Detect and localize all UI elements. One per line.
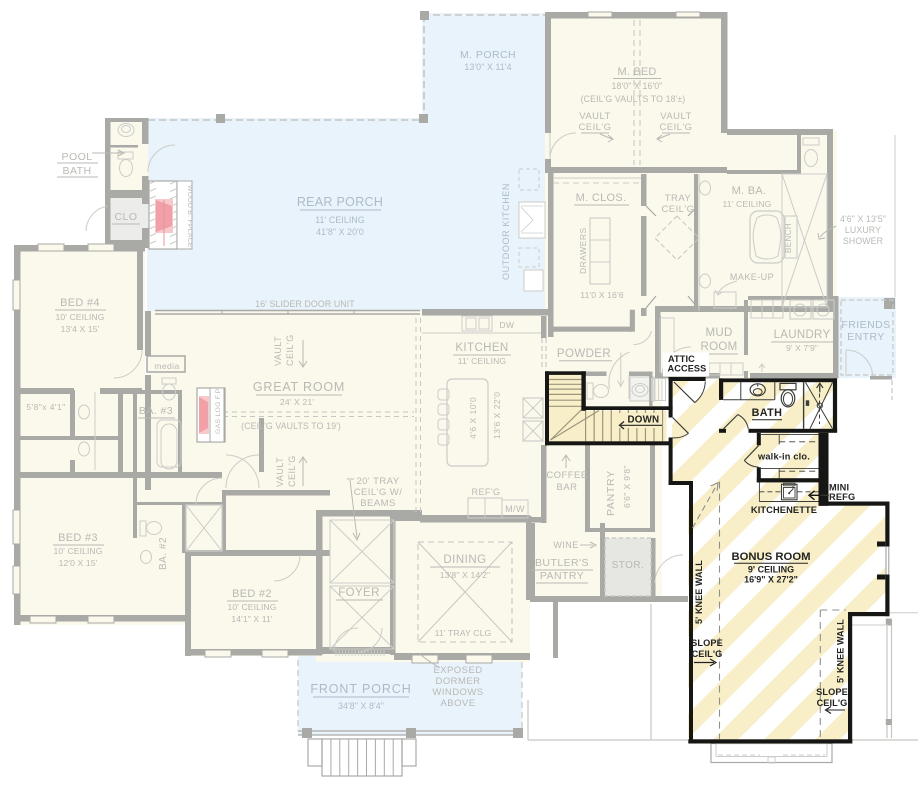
- svg-text:PANTRY: PANTRY: [540, 570, 584, 582]
- svg-text:STOR.: STOR.: [612, 560, 645, 571]
- svg-text:FRONT PORCH: FRONT PORCH: [310, 682, 411, 696]
- svg-text:SLOPE: SLOPE: [691, 638, 723, 648]
- svg-text:MAKE-UP: MAKE-UP: [730, 272, 774, 282]
- svg-text:SHOWER: SHOWER: [843, 236, 883, 246]
- svg-text:BATH: BATH: [62, 165, 91, 177]
- svg-text:ACCESS: ACCESS: [668, 364, 707, 374]
- svg-text:9' X 7'9": 9' X 7'9": [786, 343, 818, 353]
- svg-text:11' CEILING: 11' CEILING: [723, 199, 772, 209]
- svg-text:BENCH: BENCH: [784, 223, 793, 253]
- svg-text:(CEIL'G VAULTS TO 19'): (CEIL'G VAULTS TO 19'): [241, 421, 341, 431]
- svg-text:BATH: BATH: [752, 407, 783, 419]
- svg-text:13'8" X 14'2": 13'8" X 14'2": [440, 570, 490, 580]
- svg-text:13'6 X 22'0: 13'6 X 22'0: [492, 391, 502, 439]
- svg-text:KITCHEN: KITCHEN: [455, 342, 508, 354]
- svg-text:BED #4: BED #4: [60, 297, 100, 309]
- svg-text:M. PORCH: M. PORCH: [460, 49, 516, 61]
- svg-text:REF'G: REF'G: [472, 487, 501, 497]
- svg-text:4'6" X 13'5": 4'6" X 13'5": [840, 214, 886, 224]
- svg-text:11'0 X 16'6: 11'0 X 16'6: [580, 290, 623, 300]
- svg-text:PANTRY: PANTRY: [605, 470, 617, 516]
- svg-text:CEIL'G: CEIL'G: [692, 649, 723, 659]
- svg-text:11' CEILING: 11' CEILING: [458, 356, 507, 366]
- svg-text:REAR PORCH: REAR PORCH: [297, 195, 383, 209]
- svg-text:REFG: REFG: [829, 492, 855, 502]
- svg-text:CEIL'G: CEIL'G: [659, 122, 692, 133]
- svg-text:41'8" X 20'0: 41'8" X 20'0: [316, 227, 364, 237]
- svg-text:CEIL'G: CEIL'G: [578, 122, 611, 133]
- svg-text:FRIENDS: FRIENDS: [841, 319, 890, 331]
- svg-text:5' KNEE WALL: 5' KNEE WALL: [836, 619, 846, 683]
- svg-text:BONUS ROOM: BONUS ROOM: [731, 551, 810, 563]
- svg-text:POOL: POOL: [62, 151, 93, 163]
- svg-text:SLOPE: SLOPE: [816, 687, 848, 697]
- svg-text:GAS LOG F.P.: GAS LOG F.P.: [215, 387, 222, 434]
- svg-text:GREAT ROOM: GREAT ROOM: [253, 380, 345, 394]
- svg-text:LUXURY: LUXURY: [845, 225, 881, 235]
- svg-text:M. BED: M. BED: [617, 66, 656, 78]
- svg-text:6'6" X 9'8": 6'6" X 9'8": [622, 465, 632, 508]
- svg-text:CLO: CLO: [115, 211, 138, 223]
- svg-text:DOWN: DOWN: [627, 415, 659, 426]
- svg-text:13'4 X 15': 13'4 X 15': [61, 324, 100, 334]
- svg-text:4'6 X 10'0: 4'6 X 10'0: [468, 397, 478, 439]
- svg-text:12'0 X 15': 12'0 X 15': [59, 558, 98, 568]
- svg-text:MINI: MINI: [829, 483, 849, 493]
- svg-text:TRAY: TRAY: [665, 193, 692, 204]
- svg-text:M/W: M/W: [505, 504, 525, 514]
- svg-text:WINDOWS: WINDOWS: [432, 687, 483, 698]
- svg-text:BUTLER'S: BUTLER'S: [535, 557, 589, 569]
- svg-text:16' SLIDER DOOR UNIT: 16' SLIDER DOOR UNIT: [255, 299, 355, 309]
- svg-text:LAUNDRY: LAUNDRY: [774, 329, 831, 341]
- svg-text:VAULT: VAULT: [579, 111, 610, 122]
- svg-text:10' CEILING: 10' CEILING: [53, 546, 102, 556]
- svg-text:M. BA.: M. BA.: [732, 185, 767, 197]
- svg-text:EXPOSED: EXPOSED: [433, 665, 482, 676]
- svg-text:VAULT: VAULT: [275, 457, 285, 487]
- svg-text:CEIL'G: CEIL'G: [817, 698, 848, 708]
- svg-text:13'0" X 11'4: 13'0" X 11'4: [464, 62, 511, 72]
- svg-text:BA. #2: BA. #2: [158, 537, 169, 570]
- svg-text:CEIL'G W/: CEIL'G W/: [354, 487, 403, 498]
- svg-text:20' TRAY: 20' TRAY: [356, 476, 399, 487]
- svg-text:9' CEILING: 9' CEILING: [748, 564, 794, 574]
- svg-text:M. CLOS.: M. CLOS.: [576, 192, 627, 204]
- svg-text:VAULT: VAULT: [273, 336, 283, 366]
- svg-text:CEIL'G: CEIL'G: [287, 455, 297, 487]
- svg-text:OUTDOOR KITCHEN: OUTDOOR KITCHEN: [501, 183, 511, 280]
- svg-text:MUD: MUD: [705, 327, 732, 339]
- svg-text:24' X 21': 24' X 21': [280, 397, 314, 407]
- svg-text:34'8" X 8'4": 34'8" X 8'4": [338, 701, 384, 711]
- svg-text:BED #2: BED #2: [232, 588, 272, 600]
- svg-text:10' CEILING: 10' CEILING: [227, 602, 276, 612]
- svg-text:FOYER: FOYER: [338, 587, 380, 599]
- svg-text:WOOD B. FPLACE: WOOD B. FPLACE: [186, 185, 193, 248]
- svg-text:5' KNEE WALL: 5' KNEE WALL: [694, 560, 704, 624]
- svg-text:CEIL'G: CEIL'G: [285, 334, 295, 366]
- svg-text:COFFEE: COFFEE: [546, 470, 587, 481]
- svg-text:walk-in clo.: walk-in clo.: [757, 452, 810, 462]
- svg-text:ABOVE: ABOVE: [441, 698, 476, 709]
- svg-text:ATTIC: ATTIC: [668, 354, 695, 364]
- svg-text:5'8"x 4'1": 5'8"x 4'1": [26, 402, 65, 412]
- svg-text:ROOM: ROOM: [701, 341, 738, 353]
- svg-text:VAULT: VAULT: [660, 111, 691, 122]
- svg-text:CEIL'G: CEIL'G: [661, 204, 694, 215]
- svg-text:18'0" X 16'0": 18'0" X 16'0": [611, 81, 662, 91]
- svg-text:KITCHENETTE: KITCHENETTE: [751, 505, 817, 515]
- svg-text:DW: DW: [499, 320, 514, 330]
- svg-text:11' CEILING: 11' CEILING: [315, 215, 365, 225]
- svg-text:media: media: [154, 361, 179, 371]
- svg-text:14'1" X 11': 14'1" X 11': [231, 614, 272, 624]
- svg-text:DORMER: DORMER: [436, 676, 481, 687]
- svg-text:ENTRY: ENTRY: [847, 331, 885, 343]
- svg-text:10' CEILING: 10' CEILING: [55, 312, 104, 322]
- svg-text:DINING: DINING: [443, 554, 486, 566]
- svg-text:11' TRAY CLG: 11' TRAY CLG: [435, 628, 492, 638]
- svg-text:DRAWERS: DRAWERS: [578, 227, 588, 274]
- svg-text:16'9" X 27'2": 16'9" X 27'2": [744, 575, 798, 585]
- svg-text:BAR: BAR: [557, 482, 578, 493]
- svg-text:BED #3: BED #3: [58, 532, 98, 544]
- svg-text:POWDER: POWDER: [557, 348, 611, 360]
- svg-text:(CEIL'G VAULTS TO 18'±): (CEIL'G VAULTS TO 18'±): [581, 94, 686, 104]
- svg-text:BEAMS: BEAMS: [360, 498, 396, 509]
- svg-text:WINE: WINE: [553, 540, 578, 550]
- svg-text:BA. #3: BA. #3: [139, 405, 173, 417]
